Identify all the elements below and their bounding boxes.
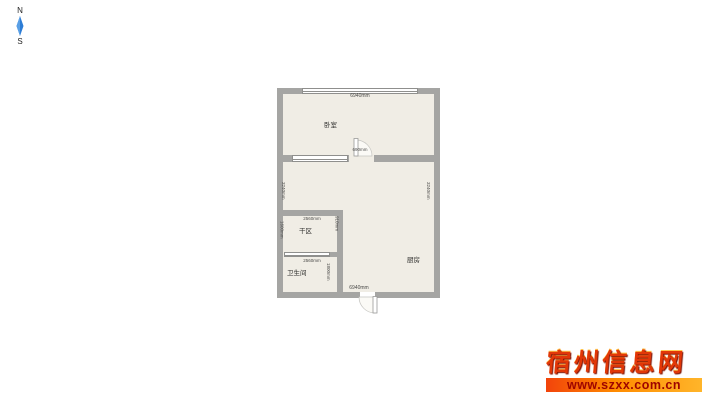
dim-left-height: 3240mm <box>281 182 286 200</box>
compass-needle-icon <box>15 16 25 36</box>
window-pane-line <box>285 255 329 256</box>
entry-door-icon <box>357 295 379 315</box>
dim-bathroom-width: 2560mm <box>294 258 330 263</box>
watermark-url-bar: www.szxx.com.cn <box>546 378 702 392</box>
watermark-url: www.szxx.com.cn <box>567 378 681 392</box>
dim-dry-area-right: 910mm <box>335 216 340 231</box>
compass: N S <box>9 6 31 46</box>
dim-bathroom-right: 1800mm <box>326 263 331 281</box>
watermark: 宿州信息网 www.szxx.com.cn <box>546 349 704 392</box>
room-label-bedroom: 卧室 <box>324 119 337 129</box>
dim-dry-area-width: 2560mm <box>294 216 330 221</box>
watermark-site-name: 宿州信息网 <box>545 349 705 377</box>
floorplan-page: N S <box>0 0 720 405</box>
wall-bottom-right-segment <box>375 292 440 298</box>
dim-top-width: 6940mm <box>330 93 390 99</box>
window-pane-line <box>293 159 347 160</box>
dim-dry-area-left: 1600mm <box>280 221 285 239</box>
room-label-dry-area: 干区 <box>299 225 312 235</box>
wall-bottom-left-segment <box>277 292 360 298</box>
dim-right-height: 3240mm <box>426 182 431 200</box>
dim-bedroom-door: 690mm <box>347 147 373 152</box>
compass-north-label: N <box>9 6 31 15</box>
dim-bottom-width: 6940mm <box>340 285 378 291</box>
wall-right <box>434 88 440 298</box>
window-middle <box>292 155 348 162</box>
room-label-bathroom: 卫生间 <box>287 267 307 277</box>
wall-bathroom-divider-stub <box>329 252 343 257</box>
compass-south-label: S <box>9 37 31 46</box>
window-pane-line <box>303 91 417 92</box>
room-label-kitchen: 厨房 <box>407 254 420 264</box>
wall-middle-right-segment <box>374 155 440 162</box>
window-bathroom <box>284 252 330 257</box>
